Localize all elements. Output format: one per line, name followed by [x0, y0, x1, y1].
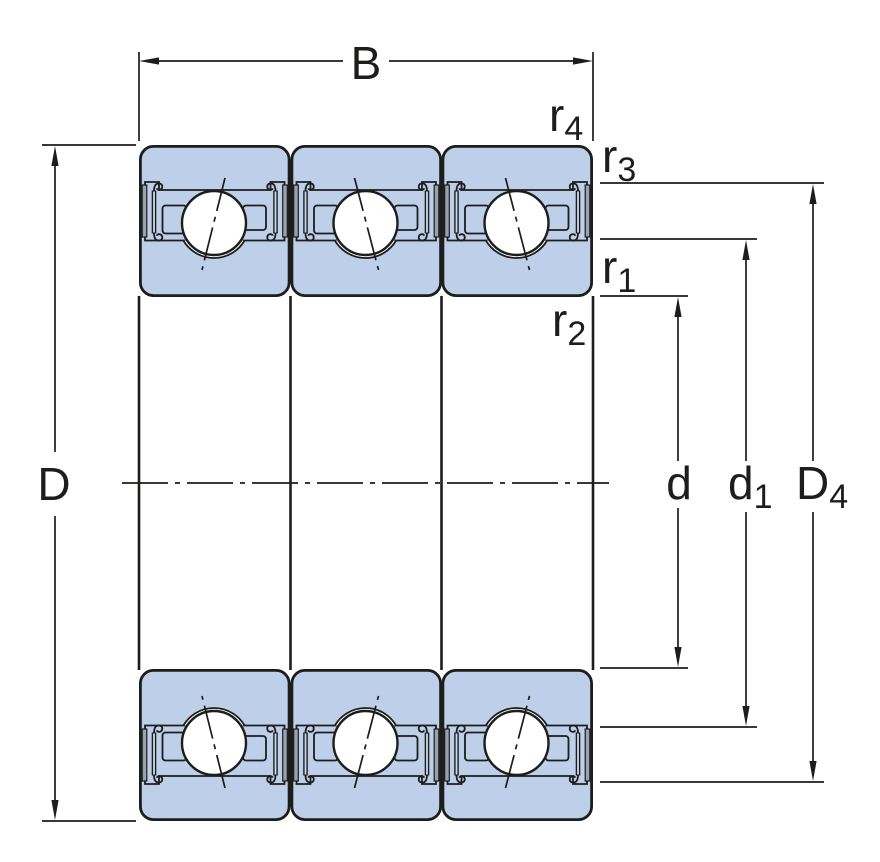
bearing-dimension-drawing: B D d d1 D4 r4 r3 r1 r2 [0, 0, 880, 862]
dimension-d1-arrow-top [742, 240, 749, 260]
bottom-row-mirrored [140, 670, 591, 819]
label-d1: d1 [728, 457, 773, 516]
dimension-B-arrow-left [139, 57, 159, 64]
label-r4: r4 [549, 89, 583, 148]
dimension-D-arrow-bottom [51, 800, 58, 820]
label-D: D [37, 458, 70, 510]
label-r1: r1 [602, 241, 636, 300]
dimension-d1-arrow-bottom [742, 706, 749, 726]
dimension-B-arrow-right [573, 57, 593, 64]
dimension-D4-arrow-bottom [809, 761, 816, 781]
drawing-canvas: B D d d1 D4 r4 r3 r1 r2 [0, 0, 880, 862]
label-d: d [666, 457, 692, 509]
label-r2: r2 [552, 294, 586, 353]
dimension-D-arrow-top [51, 146, 58, 166]
label-B: B [351, 37, 382, 89]
dimension-d-arrow-bottom [674, 647, 681, 667]
top-row [140, 146, 591, 295]
label-r3: r3 [602, 130, 636, 189]
dimension-D4-arrow-top [809, 184, 816, 204]
dimension-d-arrow-top [674, 297, 681, 317]
label-D4: D4 [796, 457, 848, 516]
